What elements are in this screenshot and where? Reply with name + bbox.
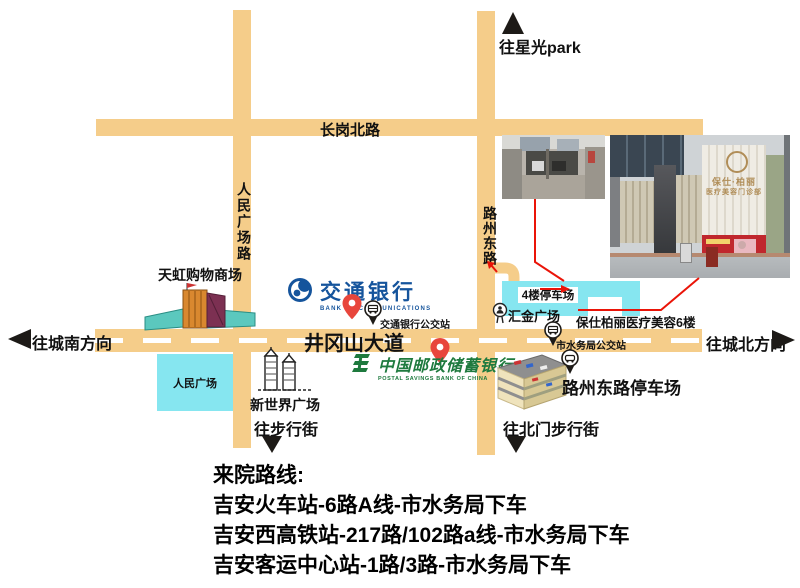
parking-4f-label: 4楼停车场: [522, 287, 574, 303]
north-gate-arrow-icon: [506, 436, 526, 453]
route-line-train: 吉安火车站-6路A线-市水务局下车: [213, 491, 630, 521]
psbc-name: 中国邮政储蓄银行: [378, 352, 514, 376]
parking-sign-icon: [560, 349, 580, 375]
new-world-plaza-icon: [256, 346, 314, 396]
clinic-sign-line2: 医疗美容门诊部: [704, 187, 764, 197]
psbc-logo: 中国邮政储蓄银行 POSTAL SAVINGS BANK OF CHINA: [352, 352, 514, 382]
road-label-luzhou-east: 路州东路: [480, 206, 500, 266]
people-square-label: 人民广场: [173, 375, 217, 391]
route-title: 来院路线:: [213, 461, 630, 491]
psbc-icon: [352, 352, 374, 376]
bocom-icon: [286, 276, 314, 304]
parking-garage-icon: [496, 352, 568, 412]
clinic-6f-label: 保仕柏丽医疗美容6楼: [576, 312, 695, 331]
psbc-name-en: POSTAL SAVINGS BANK OF CHINA: [378, 376, 514, 382]
parking-4f-box: 4楼停车场: [518, 287, 578, 303]
bocom-bus-stop-label: 交通银行公交站: [380, 316, 450, 331]
people-square-block: 人民广场: [157, 354, 233, 411]
tianhong-mall-icon: [143, 281, 259, 331]
clinic-facade-photo: 保仕·柏丽 医疗美容门诊部: [610, 135, 790, 278]
road-label-changgang: 长岗北路: [320, 119, 380, 140]
route-instructions: 来院路线: 吉安火车站-6路A线-市水务局下车 吉安西高铁站-217路/102路…: [213, 461, 630, 581]
person-icon: [492, 302, 508, 324]
road-label-renmin-square: 人民广场路: [234, 182, 254, 262]
map-canvas: 长岗北路 人民广场路 路州东路 井冈山大道 往星光park 往城南方向 往城北方…: [0, 0, 800, 588]
bocom-map-pin-icon: [342, 294, 362, 320]
route-line-highspeed: 吉安西高铁站-217路/102路a线-市水务局下车: [213, 521, 630, 551]
pedestrian-street-arrow-icon: [262, 436, 282, 453]
toward-star-park-label: 往星光park: [499, 34, 581, 58]
alley-photo: [502, 135, 605, 199]
city-north-arrow-icon: [772, 330, 795, 350]
toward-city-south-label: 往城南方向: [32, 330, 112, 354]
luzhou-parking-label: 路州东路停车场: [562, 374, 681, 399]
city-south-arrow-icon: [8, 329, 31, 349]
north-arrow-icon: [502, 12, 524, 34]
route-line-bus-center: 吉安客运中心站-1路/3路-市水务局下车: [213, 551, 630, 581]
new-world-plaza-label: 新世界广场: [250, 395, 320, 415]
